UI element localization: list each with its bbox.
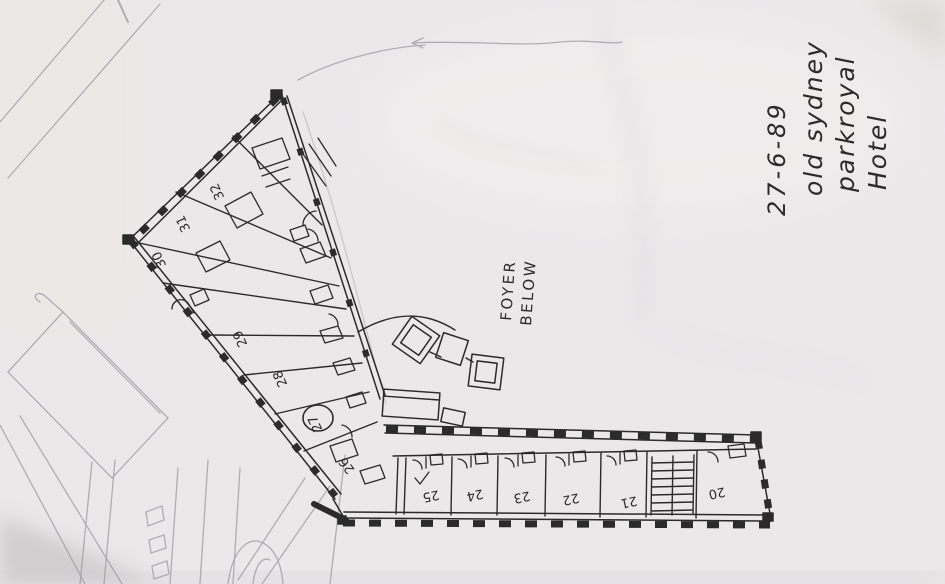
foyer-label: FOYER BELOW xyxy=(497,258,540,326)
handwritten-line-old-sydney: old sydney xyxy=(799,40,828,196)
handwritten-line-hotel: Hotel xyxy=(863,114,892,190)
scanned-floor-plan-sketch: 32 31 30 29 28 27 26 25 24 23 22 21 20 F… xyxy=(0,0,945,584)
handwritten-date: 27-6-89 xyxy=(763,101,791,216)
handwritten-line-parkroyal: parkroyal xyxy=(831,55,860,193)
floor-plan-sketch-canvas: 32 31 30 29 28 27 26 25 24 23 22 21 20 F… xyxy=(0,0,945,584)
